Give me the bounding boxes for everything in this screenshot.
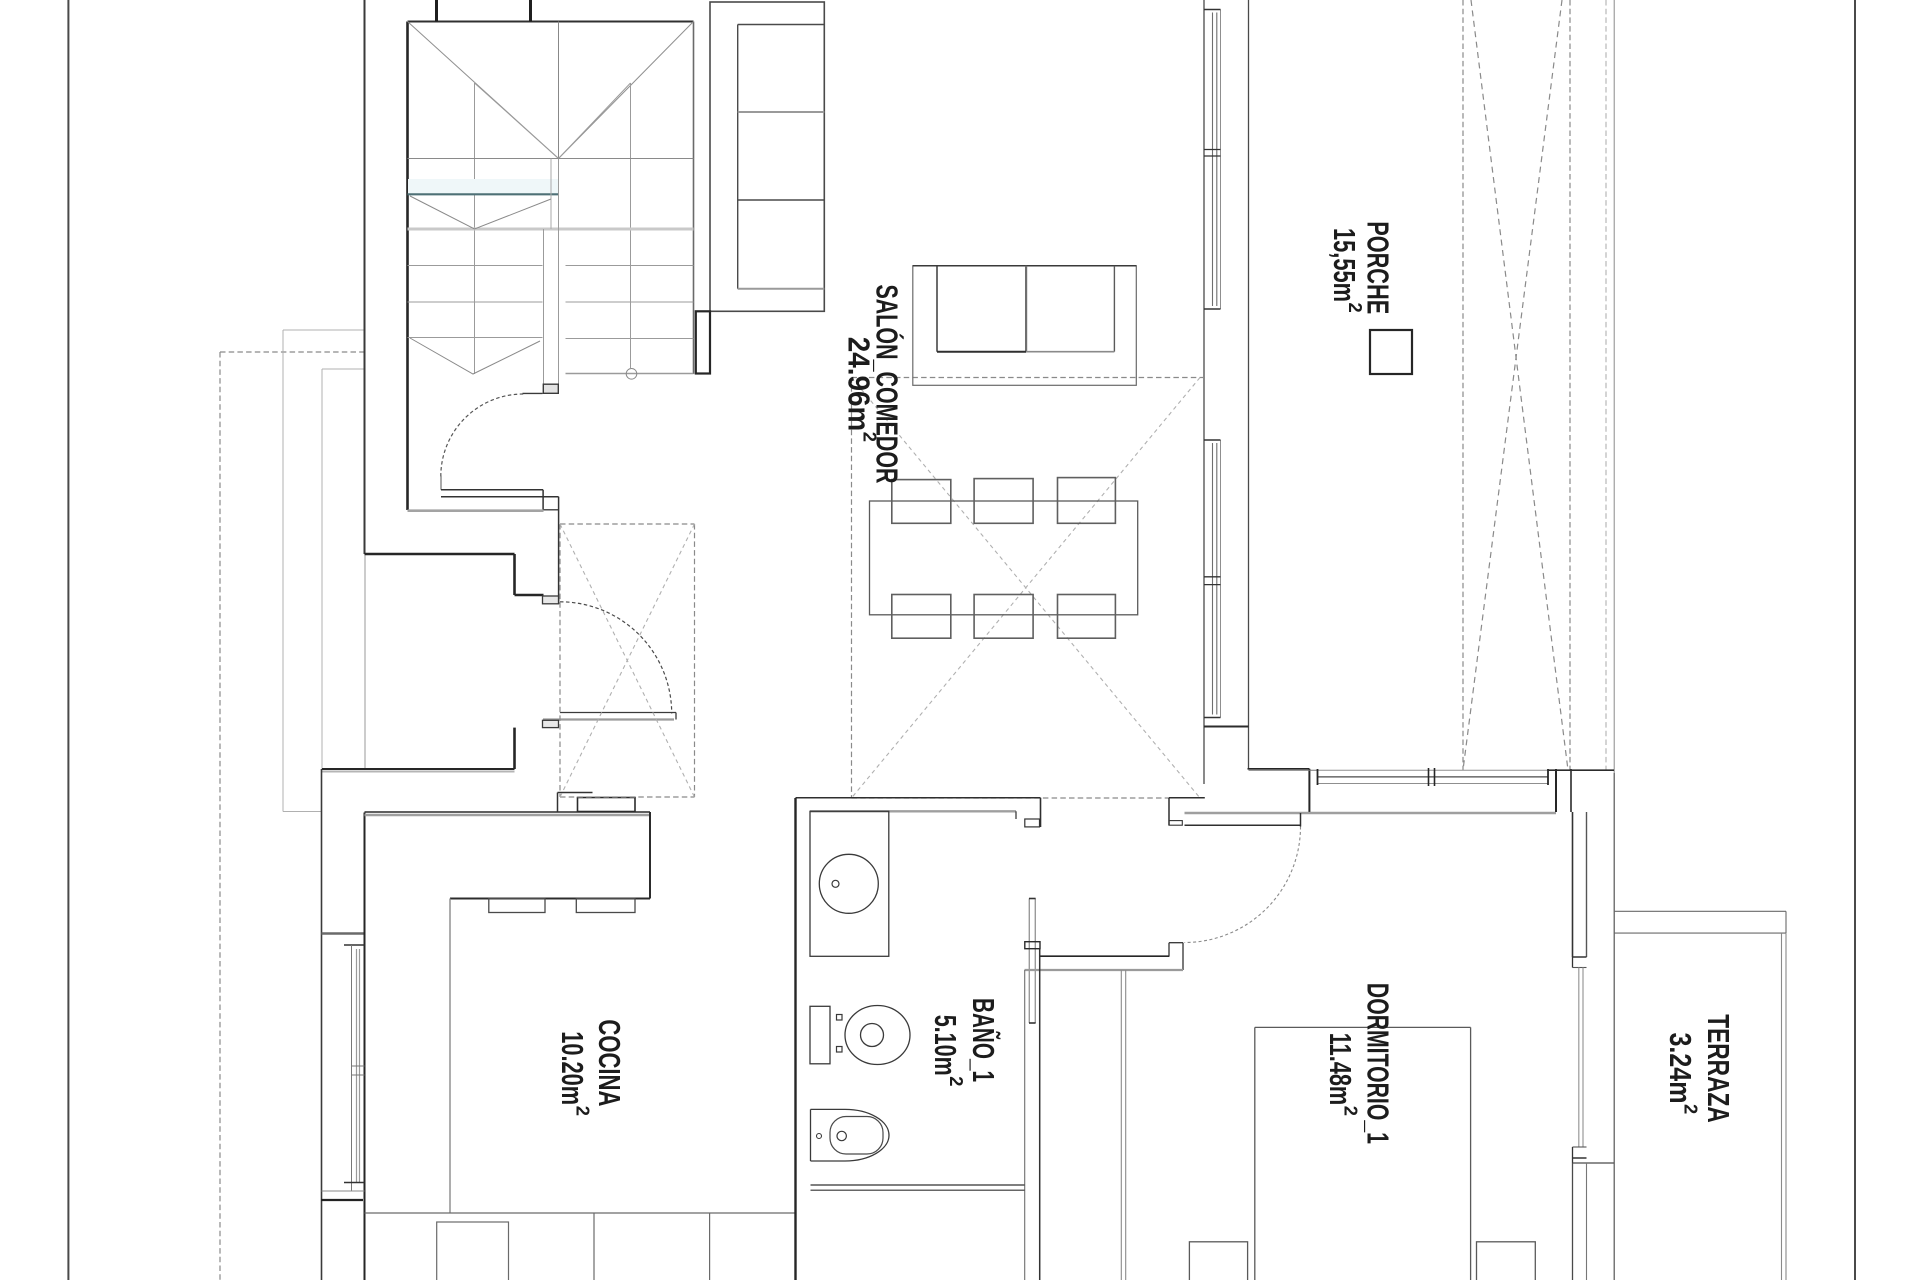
svg-text:24.96m: 24.96m	[842, 337, 876, 432]
svg-text:2: 2	[573, 1106, 594, 1116]
svg-text:2: 2	[1681, 1104, 1702, 1114]
svg-text:2: 2	[946, 1076, 967, 1086]
svg-text:BAÑO_1: BAÑO_1	[966, 998, 1001, 1082]
svg-text:2: 2	[1345, 303, 1366, 313]
svg-text:TERRAZA: TERRAZA	[1701, 1014, 1735, 1123]
svg-text:15,55m: 15,55m	[1327, 228, 1361, 302]
svg-text:3.24m: 3.24m	[1663, 1033, 1697, 1104]
svg-text:2: 2	[1341, 1106, 1362, 1116]
svg-text:COCINA: COCINA	[592, 1019, 626, 1106]
svg-text:DORMITORIO_1: DORMITORIO_1	[1360, 983, 1394, 1144]
svg-text:11.48m: 11.48m	[1323, 1033, 1357, 1106]
svg-text:5.10m: 5.10m	[928, 1015, 962, 1076]
svg-text:PORCHE: PORCHE	[1360, 221, 1394, 314]
svg-text:2: 2	[859, 432, 880, 442]
svg-text:10.20m: 10.20m	[555, 1031, 589, 1105]
